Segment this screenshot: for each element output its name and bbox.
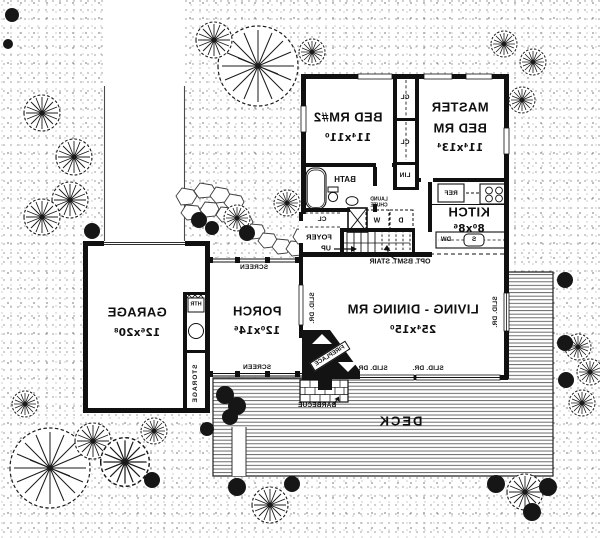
washer-label: W bbox=[374, 218, 381, 225]
kitchen-dims: 8⁰x8⁶ bbox=[453, 224, 485, 235]
porch-label: PORCH bbox=[233, 305, 282, 318]
kitchen-label: KITCH bbox=[448, 206, 490, 219]
slid-dr-living-right-label: SLID. DR. bbox=[493, 296, 500, 327]
barbecue-label: BARBECUE bbox=[298, 403, 336, 410]
garage-dims: 12⁶x20⁸ bbox=[114, 328, 161, 339]
porch-dims: 12⁰x14⁶ bbox=[234, 326, 281, 337]
slid-dr-bottom-left-label: SLID. DR. bbox=[356, 366, 387, 373]
dryer-label: D bbox=[398, 218, 403, 225]
linen-label: LIN bbox=[399, 173, 410, 180]
screen-top-label: SCREEN bbox=[240, 265, 268, 272]
up-label: UP bbox=[321, 246, 331, 253]
closet-upper-label: CL bbox=[400, 95, 409, 102]
plan-drawing bbox=[0, 0, 600, 538]
refrigerator-label: REF bbox=[444, 191, 458, 198]
bath-label: BATH bbox=[334, 176, 356, 184]
master-label-1: MASTER bbox=[431, 101, 488, 114]
mirrored-plan: BED RM#2 11⁴x11⁰ MASTER BED RM 11⁴x13⁴ C… bbox=[0, 0, 600, 538]
heater-label: HTR bbox=[190, 302, 201, 308]
master-dims: 11⁴x13⁴ bbox=[437, 143, 484, 154]
deck-label: DECK bbox=[378, 415, 423, 428]
storage-label: STORAGE bbox=[193, 364, 200, 403]
driveway bbox=[104, 0, 185, 243]
closet-lower-label: CL bbox=[400, 140, 409, 147]
master-label-2: BED RM bbox=[433, 122, 487, 135]
bed2-label: BED RM#2 bbox=[314, 111, 383, 124]
dishwasher-label: DW bbox=[441, 237, 451, 243]
slid-dr-porch-label: SLID. DR. bbox=[310, 292, 317, 323]
garage-label: GARAGE bbox=[107, 306, 166, 319]
screen-bottom-label: SCREEN bbox=[243, 365, 271, 372]
slid-dr-bottom-right-label: SLID. DR. bbox=[412, 366, 443, 373]
bed2-dims: 11⁴x11⁰ bbox=[325, 133, 372, 144]
living-label: LIVING - DINING RM bbox=[347, 303, 478, 316]
foyer-closet-label: CL bbox=[317, 217, 326, 224]
living-dims: 25⁴x15⁰ bbox=[390, 325, 437, 336]
sink-label: S bbox=[472, 237, 477, 244]
foyer-label: FOYER bbox=[306, 233, 332, 241]
floor-plan-image: BED RM#2 11⁴x11⁰ MASTER BED RM 11⁴x13⁴ C… bbox=[0, 0, 600, 538]
barbecue bbox=[300, 377, 348, 404]
opt-bsmt-stair-label: OPT. BSMT. STAIR bbox=[370, 259, 431, 266]
laundry-chute-label-2: CHUTE bbox=[370, 204, 387, 209]
